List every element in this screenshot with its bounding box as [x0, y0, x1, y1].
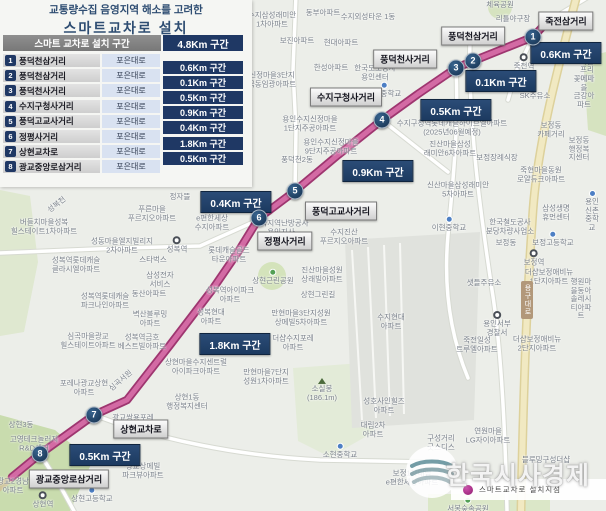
table-header-total: 4.8Km 구간	[163, 35, 243, 51]
row-road-name: 포은대로	[102, 130, 160, 143]
map-distance-badge: 0.9Km 구간	[342, 160, 413, 182]
map-distance-badge: 0.6Km 구간	[530, 42, 601, 64]
table-row-name: 4수지구청사거리	[3, 100, 100, 113]
table-row-name: 2풍덕천삼거리	[3, 69, 100, 82]
intersection-name: 정평사거리	[19, 131, 58, 143]
intersection-name: 광교중앙로삼거리	[19, 161, 82, 173]
table-header-label: 스마트 교차로 설치 구간	[3, 35, 161, 51]
row-number-badge: 7	[5, 146, 16, 157]
row-road-name: 포은대로	[102, 54, 160, 67]
row-road-name: 포은대로	[102, 69, 160, 82]
intersection-name: 풍덕천삼거리	[19, 55, 66, 67]
segment-distance-badge: 1.8Km 구간	[163, 137, 243, 150]
row-number-badge: 6	[5, 131, 16, 142]
segment-distance-badge: 0.5Km 구간	[163, 152, 243, 165]
route-point-marker: 3	[448, 60, 465, 77]
rail-depot-area	[345, 232, 480, 428]
map-intersection-label: 풍덕고교사거리	[305, 202, 377, 221]
row-road-name: 포은대로	[102, 115, 160, 128]
table-row-name: 5풍덕고교사거리	[3, 115, 100, 128]
row-number-badge: 1	[5, 55, 16, 66]
segment-distance-badge: 0.1Km 구간	[163, 76, 243, 89]
row-road-name: 포은대로	[102, 145, 160, 158]
row-road-name: 포은대로	[102, 160, 160, 173]
table-row-name: 1풍덕천삼거리	[3, 54, 100, 67]
infographic-root: 체육공원리틀야구장수지삼성래미안 1차아파트동부아파트수지외성타운 1동죽전역도…	[0, 0, 606, 511]
panel-title: 교통량수집 음영지역 해소를 고려한 스마트교차로 설치	[0, 2, 252, 38]
publisher-watermark: 한국시사경제	[446, 456, 606, 492]
park-area	[258, 262, 286, 290]
row-road-name: 포은대로	[102, 84, 160, 97]
route-point-marker: 2	[465, 53, 482, 70]
map-intersection-label: 광교중앙로삼거리	[29, 470, 109, 489]
map-intersection-label: 수지구청사거리	[310, 88, 382, 107]
route-point-marker: 6	[251, 210, 268, 227]
table-row-name: 8광교중앙로삼거리	[3, 160, 100, 173]
row-number-badge: 2	[5, 70, 16, 81]
intersection-name: 풍덕고교사거리	[19, 115, 74, 127]
row-road-name: 포은대로	[102, 100, 160, 113]
panel-title-line1: 교통량수집 음영지역 해소를 고려한	[0, 2, 252, 17]
row-number-badge: 3	[5, 85, 16, 96]
segment-distance-badge: 0.9Km 구간	[163, 106, 243, 119]
route-point-marker: 5	[287, 183, 304, 200]
table-row-name: 6정평사거리	[3, 130, 100, 143]
intersection-name: 풍덕천사거리	[19, 85, 66, 97]
map-distance-badge: 0.1Km 구간	[465, 70, 536, 92]
table-row-name: 3풍덕천사거리	[3, 84, 100, 97]
segment-distance-badge: 0.6Km 구간	[163, 61, 243, 74]
map-distance-badge: 0.5Km 구간	[420, 99, 491, 121]
segment-distance-badge: 0.4Km 구간	[163, 121, 243, 134]
row-number-badge: 4	[5, 101, 16, 112]
map-distance-badge: 1.8Km 구간	[199, 333, 270, 355]
route-point-marker: 1	[525, 29, 542, 46]
map-intersection-label: 풍덕천사거리	[373, 50, 437, 69]
row-number-badge: 5	[5, 116, 16, 127]
route-point-marker: 4	[374, 112, 391, 129]
map-distance-badge: 0.5Km 구간	[69, 444, 140, 466]
intersection-name: 풍덕천삼거리	[19, 70, 66, 82]
road-name-ribbon: 용구대로	[521, 281, 533, 319]
table-row-name: 7상현교차로	[3, 145, 100, 158]
intersection-name: 상현교차로	[19, 146, 58, 158]
intersection-name: 수지구청사거리	[19, 100, 74, 112]
map-intersection-label: 상현교차로	[113, 420, 168, 439]
map-intersection-label: 풍덕천삼거리	[441, 27, 505, 46]
map-intersection-label: 죽전삼거리	[538, 12, 593, 31]
map-intersection-label: 정평사거리	[257, 232, 312, 251]
row-number-badge: 8	[5, 161, 16, 172]
segment-distance-badge: 0.5Km 구간	[163, 91, 243, 104]
route-point-marker: 8	[32, 446, 49, 463]
info-table-panel: 교통량수집 음영지역 해소를 고려한 스마트교차로 설치 스마트 교차로 설치 …	[0, 0, 252, 187]
route-point-marker: 7	[86, 407, 103, 424]
